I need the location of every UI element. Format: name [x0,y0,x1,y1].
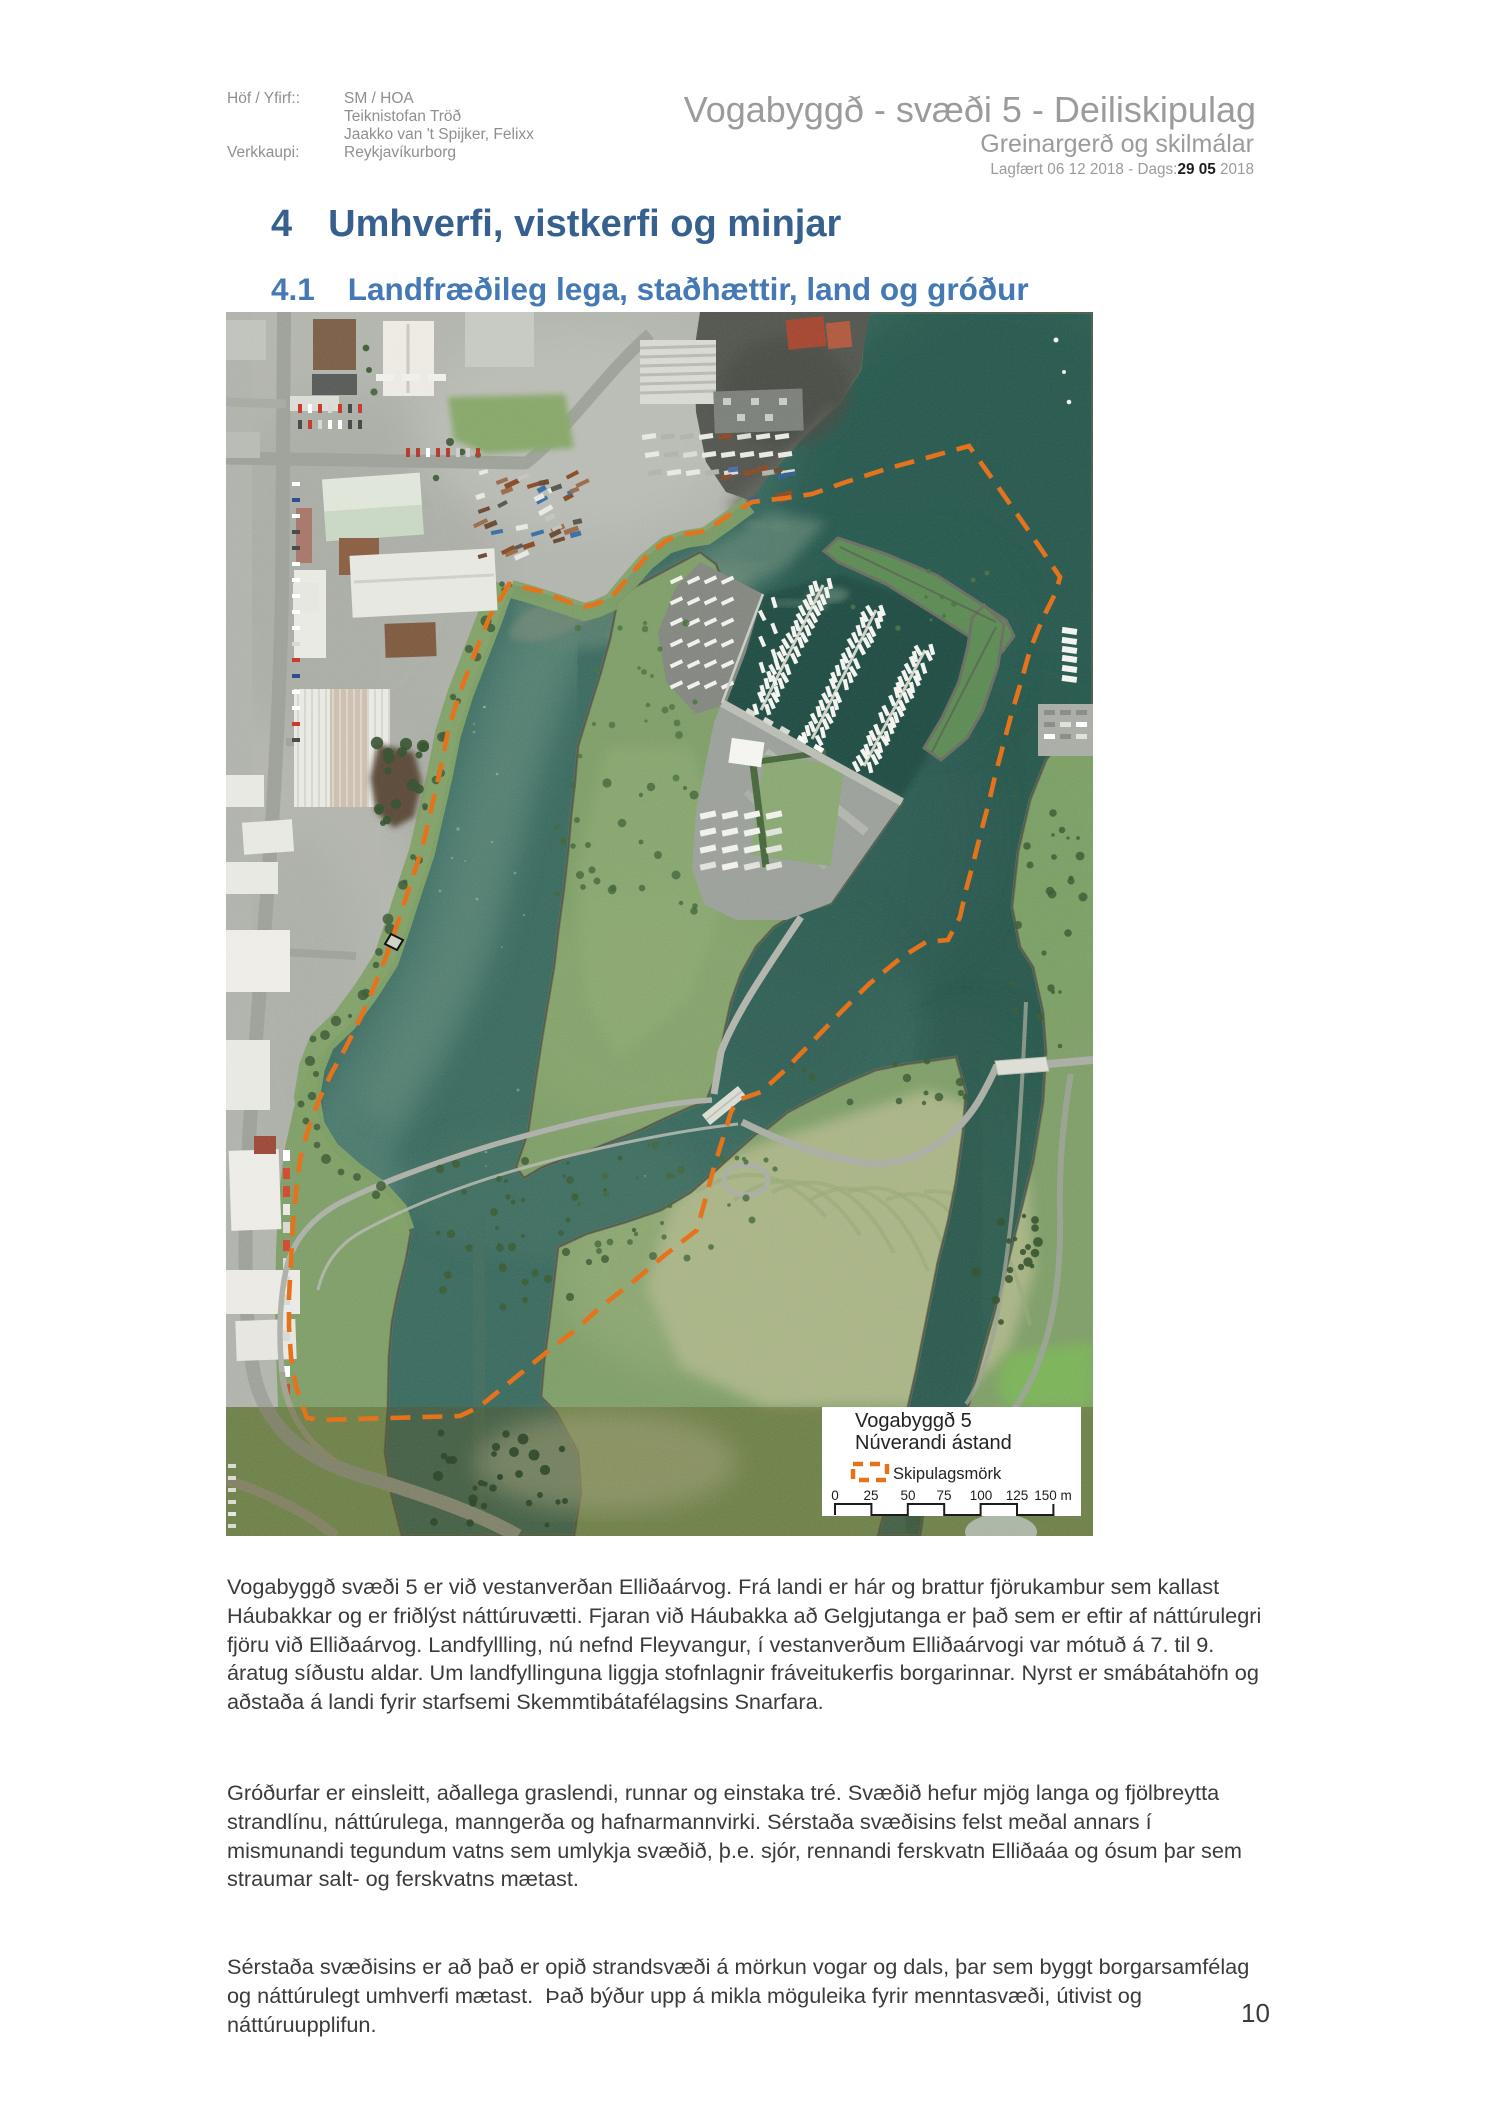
svg-text:150 m: 150 m [1034,1488,1072,1503]
svg-text:75: 75 [936,1488,951,1503]
svg-text:Vogabyggð 5: Vogabyggð 5 [855,1410,972,1432]
svg-text:50: 50 [900,1488,915,1503]
svg-text:0: 0 [831,1488,839,1503]
svg-text:25: 25 [863,1488,878,1503]
svg-text:Núverandi ástand: Núverandi ástand [855,1432,1012,1454]
svg-text:Skipulagsmörk: Skipulagsmörk [893,1465,1002,1483]
svg-text:100: 100 [970,1488,993,1503]
svg-text:125: 125 [1006,1488,1029,1503]
